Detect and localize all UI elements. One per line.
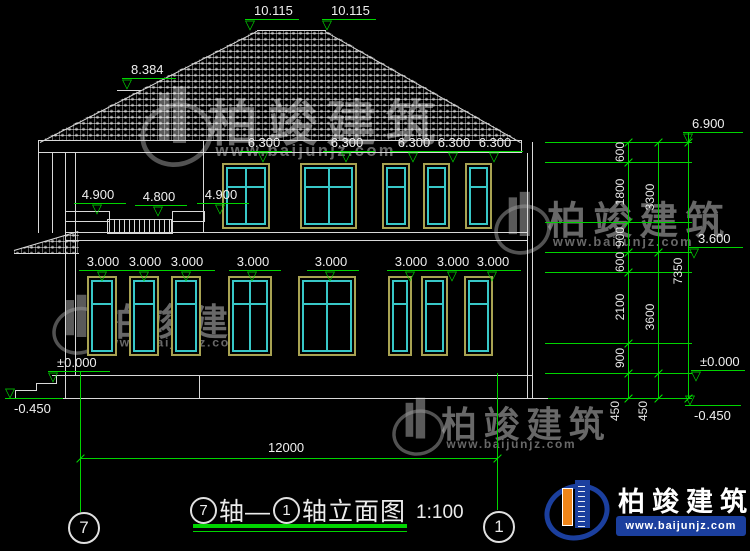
drawing-line xyxy=(52,153,53,233)
watermark-logo-icon xyxy=(66,300,74,335)
dim-value: 2100 xyxy=(614,285,626,329)
drawing-line xyxy=(52,375,532,376)
level-label: 4.900 xyxy=(68,188,128,201)
watermark-logo-icon xyxy=(520,192,530,236)
level-label: ±0.000 xyxy=(700,355,750,368)
level-triangle-icon: ▽ xyxy=(151,204,165,217)
dim-chain-line xyxy=(658,142,659,398)
level-triangle-icon: ▽ xyxy=(406,150,420,163)
drawing-line xyxy=(38,153,39,233)
drawing-line xyxy=(65,240,528,241)
window xyxy=(129,276,159,356)
axis-bubble-7: 7 xyxy=(68,512,100,544)
title-axis-circle-7: 7 xyxy=(190,497,217,524)
watermark-logo-icon xyxy=(77,295,87,337)
drawing-line xyxy=(14,253,79,254)
window-glass xyxy=(304,167,353,225)
window-glass xyxy=(91,280,113,352)
window-muntin-h xyxy=(177,303,195,305)
window xyxy=(87,276,117,356)
window-muntin-h xyxy=(135,303,153,305)
window xyxy=(228,276,272,356)
level-triangle-icon: ▽ xyxy=(90,202,104,215)
level-triangle-icon: ▽ xyxy=(213,202,227,215)
level-triangle-icon: ▽ xyxy=(46,370,60,383)
drawing-line xyxy=(257,30,326,31)
level-triangle-icon: ▽ xyxy=(446,150,460,163)
logo-building-icon xyxy=(562,488,573,526)
level-triangle-icon: ▽ xyxy=(179,269,193,282)
window-glass xyxy=(386,167,406,225)
level-label: 3.000 xyxy=(301,255,361,268)
drawing-line xyxy=(15,390,37,391)
dim-value: 7350 xyxy=(672,249,684,293)
elevation-drawing: 柏竣建筑www.baijunjz.com柏竣建筑www.baijunjz.com… xyxy=(0,0,750,551)
window-muntin-v xyxy=(328,169,330,223)
dim-value: 600 xyxy=(614,240,626,284)
title-scale: 1:100 xyxy=(416,502,464,524)
level-triangle-icon: ▽ xyxy=(256,150,270,163)
window-muntin-h xyxy=(93,303,111,305)
window-muntin-h xyxy=(471,186,486,188)
watermark-logo-icon xyxy=(406,403,414,437)
level-triangle-icon: ▽ xyxy=(245,269,259,282)
title-underline-thin xyxy=(193,531,407,532)
level-label: 6.300 xyxy=(317,136,377,149)
level-triangle-icon: ▽ xyxy=(137,269,151,282)
window xyxy=(464,276,493,356)
level-triangle-icon: ▽ xyxy=(689,369,703,382)
drawing-line xyxy=(203,140,204,153)
window-glass xyxy=(302,280,352,352)
axis-bubble-1: 1 xyxy=(483,511,515,543)
balcony-cap xyxy=(172,211,205,222)
dim-value: 1800 xyxy=(614,170,626,214)
window-glass xyxy=(392,280,408,352)
dim-value: 450 xyxy=(609,389,621,433)
axis-line xyxy=(497,373,498,510)
window-glass xyxy=(468,280,489,352)
window-glass xyxy=(232,280,268,352)
window-glass xyxy=(425,280,444,352)
level-triangle-icon: ▽ xyxy=(95,269,109,282)
level-label: 6.900 xyxy=(692,117,750,130)
window-muntin-h xyxy=(470,303,487,305)
level-label: 3.000 xyxy=(463,255,523,268)
level-triangle-icon: ▽ xyxy=(3,386,17,399)
bottom-dimension-label: 12000 xyxy=(268,441,304,454)
level-label: 4.800 xyxy=(129,190,189,203)
window xyxy=(298,276,356,356)
level-label: -0.450 xyxy=(14,402,80,415)
level-label: 8.384 xyxy=(131,63,193,76)
level-triangle-icon: ▽ xyxy=(323,269,337,282)
level-triangle-icon: ▽ xyxy=(243,18,257,31)
dim-value: 600 xyxy=(614,130,626,174)
brand-name: 柏竣建筑 xyxy=(618,480,750,519)
window-glass xyxy=(175,280,197,352)
level-label: 3.000 xyxy=(223,255,283,268)
window xyxy=(423,163,450,229)
level-triangle-icon: ▽ xyxy=(485,269,499,282)
level-triangle-icon: ▽ xyxy=(339,150,353,163)
drawing-line xyxy=(14,398,548,399)
axis-line xyxy=(80,371,81,512)
title-text-mid: 轴— xyxy=(219,492,271,528)
window-muntin-h xyxy=(427,303,442,305)
window xyxy=(171,276,201,356)
window xyxy=(382,163,410,229)
level-label: -0.450 xyxy=(694,409,750,422)
level-triangle-icon: ▽ xyxy=(403,269,417,282)
bottom-dimension-line xyxy=(80,458,497,459)
level-label: 10.115 xyxy=(254,4,316,17)
window-muntin-v xyxy=(249,282,251,350)
level-label: 3.000 xyxy=(157,255,217,268)
window-glass xyxy=(427,167,446,225)
dim-chain-line xyxy=(688,132,689,398)
dim-value: 900 xyxy=(614,336,626,380)
level-label: 6.300 xyxy=(234,136,294,149)
window-muntin-h xyxy=(429,186,444,188)
drawing-line xyxy=(527,153,528,398)
title-underline-thick xyxy=(193,524,407,528)
logo-building-icon xyxy=(575,480,590,528)
drawing-line xyxy=(532,142,533,398)
window xyxy=(421,276,448,356)
dim-value: 3300 xyxy=(644,175,656,219)
level-label: 10.115 xyxy=(331,4,393,17)
drawing-line xyxy=(199,375,200,398)
drawing-title: 7 轴— 1 轴立面图 1:100 xyxy=(188,492,464,528)
level-label: 4.900 xyxy=(191,188,251,201)
level-triangle-icon: ▽ xyxy=(320,18,334,31)
title-text-suffix: 轴立面图 xyxy=(302,492,406,528)
watermark-logo-icon xyxy=(416,398,425,439)
balcony-railing xyxy=(107,219,173,234)
brand-url: www.baijunjz.com xyxy=(616,516,746,536)
window-muntin-h xyxy=(388,186,404,188)
dim-value: 3600 xyxy=(644,295,656,339)
window-muntin-v xyxy=(326,282,328,350)
window-glass xyxy=(469,167,488,225)
drawing-line xyxy=(36,383,37,391)
window xyxy=(300,163,357,229)
window xyxy=(388,276,412,356)
window-muntin-h xyxy=(394,303,406,305)
level-label: ±0.000 xyxy=(57,356,127,369)
window-glass xyxy=(133,280,155,352)
level-triangle-icon: ▽ xyxy=(445,269,459,282)
dim-value: 450 xyxy=(637,389,649,433)
level-triangle-icon: ▽ xyxy=(487,150,501,163)
level-triangle-icon: ▽ xyxy=(120,77,134,90)
brand-logo: 柏竣建筑 www.baijunjz.com xyxy=(540,472,746,548)
title-axis-circle-1: 1 xyxy=(273,497,300,524)
level-label: 3.600 xyxy=(698,232,750,245)
level-triangle-icon: ▽ xyxy=(687,246,701,259)
watermark-logo-icon xyxy=(509,197,517,234)
window xyxy=(465,163,492,229)
level-label: 6.300 xyxy=(465,136,525,149)
watermark-url: www.baijunjz.com xyxy=(446,437,576,451)
